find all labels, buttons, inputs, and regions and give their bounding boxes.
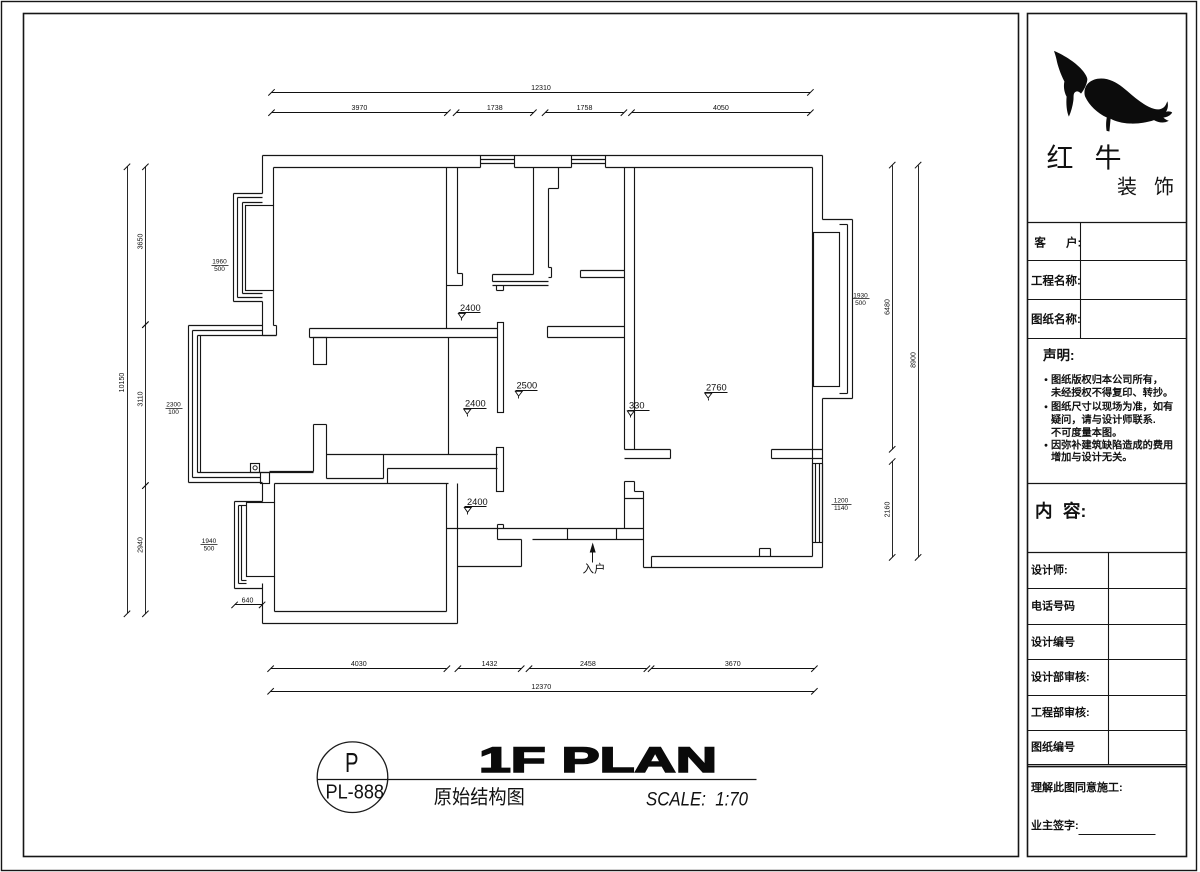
svg-text:1738: 1738 bbox=[487, 104, 503, 112]
svg-text:1758: 1758 bbox=[577, 104, 593, 112]
svg-text:饰: 饰 bbox=[1154, 171, 1174, 200]
svg-text:增加与设计无关。: 增加与设计无关。 bbox=[1051, 449, 1133, 464]
svg-text:4050: 4050 bbox=[713, 104, 729, 112]
svg-text:2300: 2300 bbox=[166, 402, 181, 409]
svg-text:4030: 4030 bbox=[351, 660, 367, 668]
svg-text:图纸编号: 图纸编号 bbox=[1031, 738, 1075, 754]
svg-text:3970: 3970 bbox=[352, 104, 368, 112]
svg-text:2400: 2400 bbox=[467, 497, 488, 507]
svg-text:设计部审核:: 设计部审核: bbox=[1031, 669, 1090, 685]
svg-text:1940: 1940 bbox=[202, 538, 217, 545]
svg-text:设计编号: 设计编号 bbox=[1031, 634, 1075, 650]
svg-text:2500: 2500 bbox=[517, 381, 538, 391]
svg-text:业主签字:: 业主签字: bbox=[1031, 817, 1079, 833]
svg-text:红: 红 bbox=[1047, 137, 1074, 176]
svg-text:PL-888: PL-888 bbox=[326, 782, 385, 804]
svg-text:工程部审核:: 工程部审核: bbox=[1031, 704, 1090, 720]
svg-text:500: 500 bbox=[214, 266, 225, 273]
svg-text:3670: 3670 bbox=[725, 660, 741, 668]
svg-text:12370: 12370 bbox=[531, 683, 551, 691]
svg-text:SCALE: 1:70: SCALE: 1:70 bbox=[646, 790, 748, 811]
svg-text:1432: 1432 bbox=[482, 660, 498, 668]
svg-text:330: 330 bbox=[629, 400, 645, 410]
svg-text:12310: 12310 bbox=[531, 84, 551, 92]
svg-text:原始结构图: 原始结构图 bbox=[434, 781, 525, 810]
svg-text:10150: 10150 bbox=[118, 373, 126, 393]
svg-text:理解此图同意施工:: 理解此图同意施工: bbox=[1031, 779, 1123, 795]
svg-text:500: 500 bbox=[855, 300, 866, 307]
svg-text:3650: 3650 bbox=[137, 234, 145, 250]
svg-text:8900: 8900 bbox=[909, 352, 917, 368]
svg-text:2940: 2940 bbox=[137, 537, 145, 553]
svg-text:6480: 6480 bbox=[883, 299, 891, 315]
svg-text:1F PLAN: 1F PLAN bbox=[479, 741, 717, 780]
svg-text:2400: 2400 bbox=[465, 399, 486, 409]
svg-text:2160: 2160 bbox=[883, 502, 891, 518]
svg-text:100: 100 bbox=[168, 409, 179, 416]
svg-text:声明:: 声明: bbox=[1042, 344, 1075, 364]
svg-text:未经授权不得复印、转抄。: 未经授权不得复印、转抄。 bbox=[1050, 384, 1173, 399]
svg-text:电话号码: 电话号码 bbox=[1031, 597, 1075, 613]
svg-text:2760: 2760 bbox=[706, 383, 727, 393]
svg-text:设计师:: 设计师: bbox=[1031, 562, 1068, 578]
svg-text:P: P bbox=[345, 747, 359, 778]
svg-text:500: 500 bbox=[204, 545, 215, 552]
svg-text:640: 640 bbox=[242, 597, 254, 604]
svg-text:装: 装 bbox=[1117, 171, 1137, 200]
svg-text:1200: 1200 bbox=[834, 498, 849, 505]
svg-text:客: 客 bbox=[1033, 235, 1046, 251]
svg-text:2458: 2458 bbox=[580, 660, 596, 668]
svg-text:图纸名称:: 图纸名称: bbox=[1031, 311, 1081, 327]
svg-text:1960: 1960 bbox=[212, 259, 227, 266]
svg-text:工程名称:: 工程名称: bbox=[1031, 273, 1081, 289]
svg-text:户:: 户: bbox=[1066, 235, 1081, 251]
svg-text:3110: 3110 bbox=[137, 391, 145, 406]
svg-text:内: 内 bbox=[1035, 498, 1053, 523]
svg-text:容:: 容: bbox=[1063, 498, 1086, 523]
svg-text:2400: 2400 bbox=[460, 303, 481, 313]
svg-text:1140: 1140 bbox=[834, 505, 848, 512]
svg-text:入户: 入户 bbox=[583, 561, 606, 577]
